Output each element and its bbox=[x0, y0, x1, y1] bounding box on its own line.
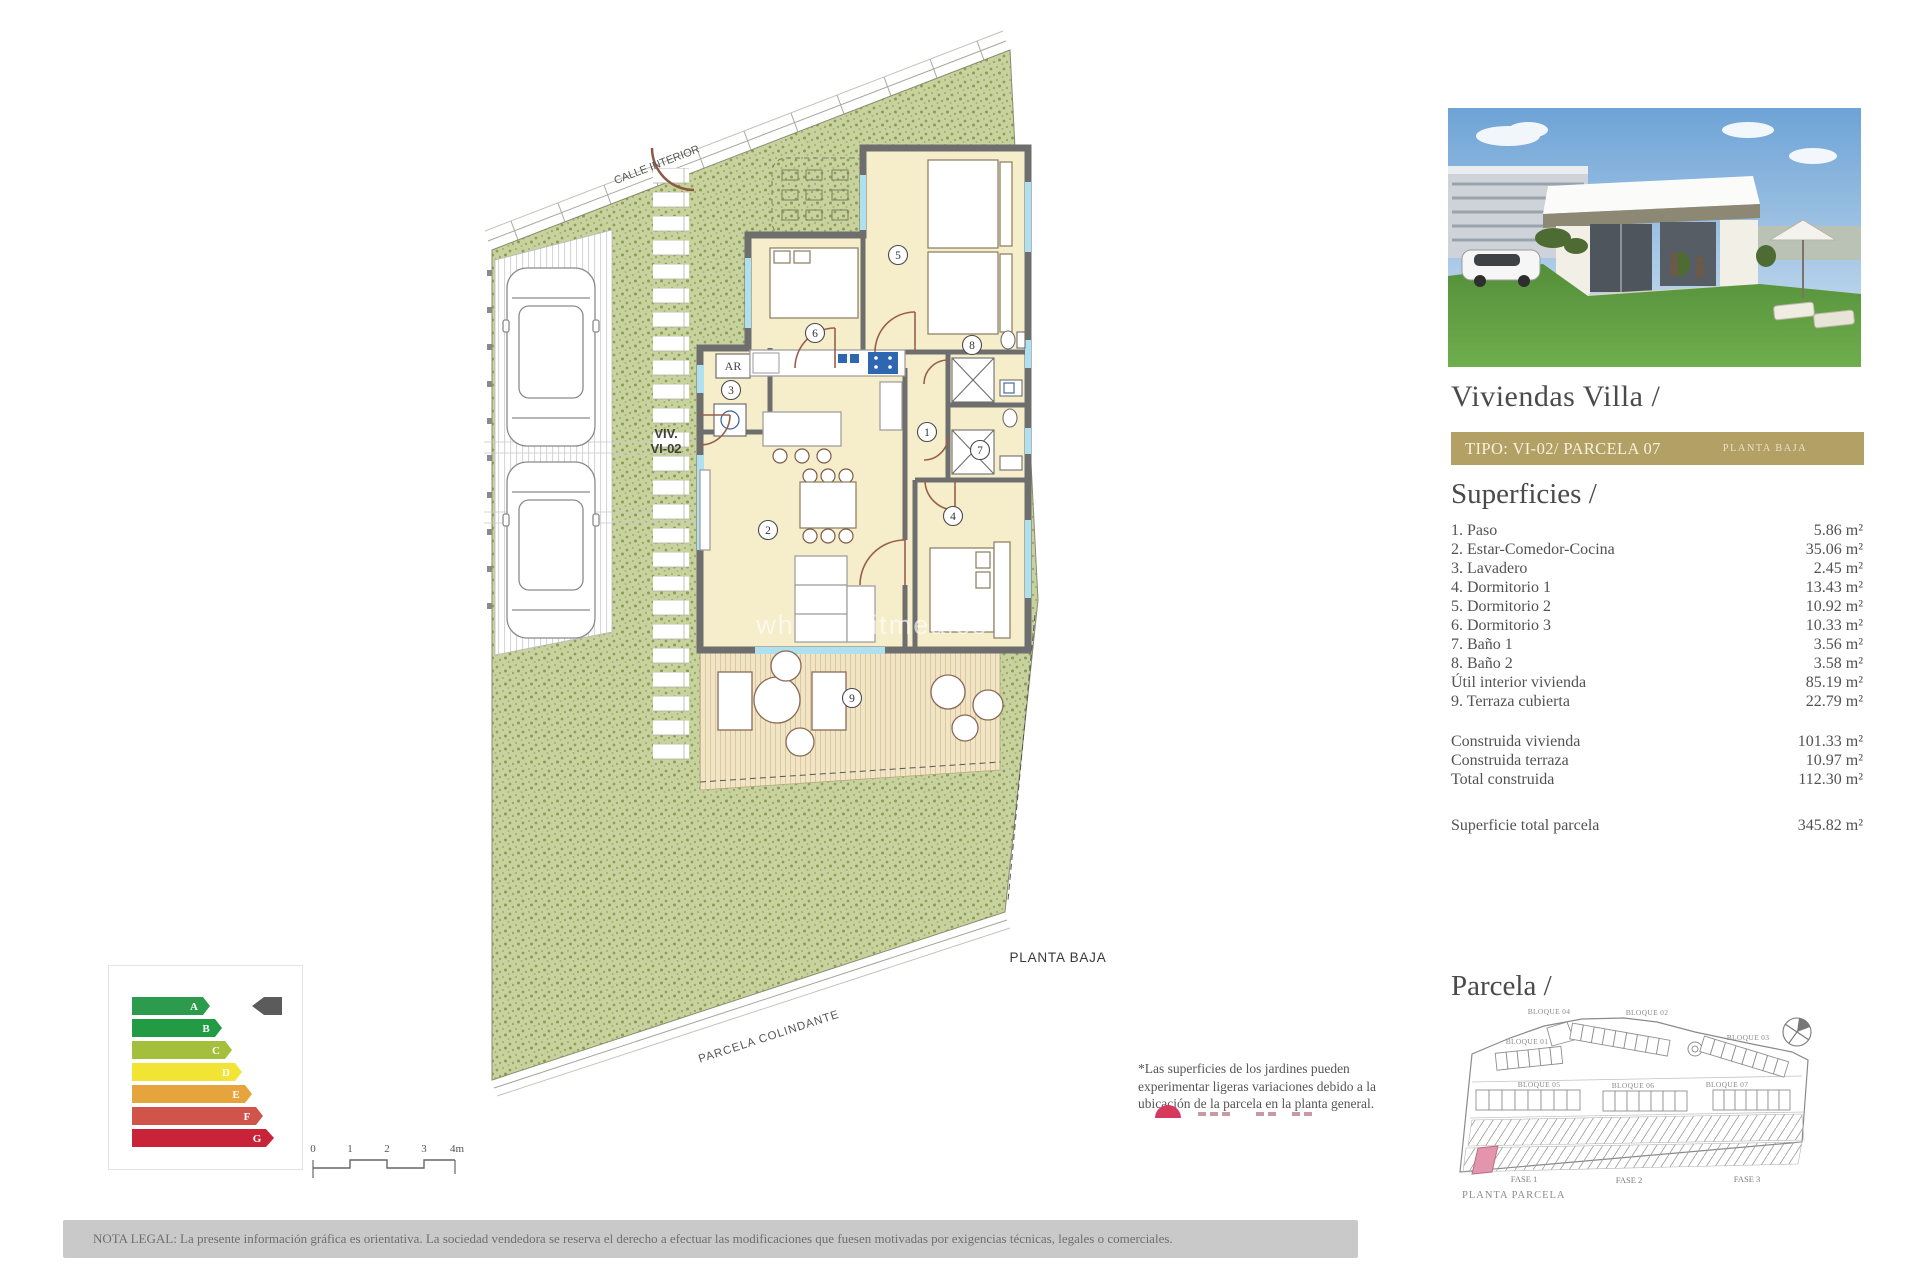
energy-band-a bbox=[132, 997, 210, 1015]
planta-baja-label: PLANTA BAJA bbox=[1009, 950, 1106, 965]
svg-text:3: 3 bbox=[728, 385, 734, 397]
bed-dorm6 bbox=[770, 248, 858, 318]
superficies-totals: Construida vivienda101.33 m² Construida … bbox=[1451, 732, 1863, 789]
superficies-row: Construida vivienda101.33 m² bbox=[1451, 732, 1863, 751]
legal-note-text: NOTA LEGAL: La presente información gráf… bbox=[63, 1220, 1358, 1258]
bloque-05 bbox=[1476, 1090, 1580, 1110]
roundabout bbox=[1688, 1042, 1702, 1056]
viv-label-line1: VIV. bbox=[654, 426, 677, 441]
superficies-row: Total construida112.30 m² bbox=[1451, 770, 1863, 789]
tipo-bar: TIPO: VI-02/ PARCELA 07 PLANTA BAJA bbox=[1451, 432, 1864, 465]
svg-text:1: 1 bbox=[347, 1143, 353, 1155]
svg-text:4m: 4m bbox=[450, 1143, 465, 1155]
red-dot-half bbox=[1155, 1105, 1181, 1118]
svg-text:9: 9 bbox=[849, 693, 855, 705]
svg-text:E: E bbox=[232, 1089, 239, 1101]
dining-set bbox=[800, 469, 856, 543]
svg-text:4: 4 bbox=[950, 511, 956, 523]
room-circle-7: 7 bbox=[971, 441, 990, 460]
bloque-06-label: BLOQUE 06 bbox=[1612, 1081, 1655, 1090]
room-circle-4: 4 bbox=[944, 507, 963, 526]
note-legend-remnant bbox=[1140, 1096, 1400, 1124]
svg-text:A: A bbox=[190, 1001, 198, 1013]
fase-2-label: FASE 2 bbox=[1616, 1175, 1643, 1185]
entry-path bbox=[653, 162, 689, 762]
car-1 bbox=[503, 268, 599, 446]
fase-1-label: FASE 1 bbox=[1511, 1174, 1538, 1184]
superficies-row: Construida terraza10.97 m² bbox=[1451, 751, 1863, 770]
svg-text:3: 3 bbox=[421, 1143, 427, 1155]
room-circle-9: 9 bbox=[843, 689, 862, 708]
svg-text:1: 1 bbox=[924, 427, 930, 439]
svg-text:G: G bbox=[253, 1133, 262, 1145]
svg-text:D: D bbox=[222, 1067, 230, 1079]
superficies-row: 9. Terraza cubierta22.79 m² bbox=[1451, 692, 1863, 711]
superficies-row: 1. Paso5.86 m² bbox=[1451, 521, 1863, 540]
superficies-table: 1. Paso5.86 m² 2. Estar-Comedor-Cocina35… bbox=[1451, 521, 1863, 835]
svg-text:8: 8 bbox=[969, 340, 975, 352]
svg-text:0: 0 bbox=[310, 1143, 316, 1155]
car-2 bbox=[503, 462, 599, 638]
planta-baja-tag: PLANTA BAJA bbox=[1723, 443, 1807, 454]
energy-rating-chart: A B C D E F G bbox=[108, 965, 303, 1170]
legend-dashes bbox=[1198, 1112, 1312, 1116]
superficies-row: 5. Dormitorio 210.92 m² bbox=[1451, 597, 1863, 616]
svg-text:2: 2 bbox=[384, 1143, 390, 1155]
parcela-colindante-label: PARCELA COLINDANTE bbox=[697, 1009, 841, 1066]
page-title: Viviendas Villa / bbox=[1451, 380, 1660, 414]
floor-plan: 1 2 3 4 5 6 7 8 9 AR CALLE INTERIOR VIV.… bbox=[440, 30, 1440, 1230]
room-circle-2: 2 bbox=[759, 521, 778, 540]
bloque-05-label: BLOQUE 05 bbox=[1518, 1080, 1561, 1089]
svg-text:2: 2 bbox=[765, 525, 771, 537]
villa-photo bbox=[1448, 108, 1861, 367]
svg-text:7: 7 bbox=[977, 445, 983, 457]
bloque-07 bbox=[1713, 1090, 1790, 1110]
svg-text:B: B bbox=[202, 1023, 210, 1035]
bloque-04-label: BLOQUE 04 bbox=[1528, 1007, 1571, 1016]
compass-icon bbox=[1783, 1018, 1811, 1046]
viv-label-line2: VI-02 bbox=[650, 441, 681, 456]
superficies-row: 3. Lavadero2.45 m² bbox=[1451, 559, 1863, 578]
west-fence bbox=[487, 270, 492, 609]
superficies-grand-total: Superficie total parcela345.82 m² bbox=[1451, 816, 1863, 835]
svg-text:F: F bbox=[244, 1111, 251, 1123]
room-circle-3: 3 bbox=[722, 381, 741, 400]
superficies-row: 4. Dormitorio 113.43 m² bbox=[1451, 578, 1863, 597]
bloque-03-label: BLOQUE 03 bbox=[1727, 1033, 1770, 1042]
watermark: whitedigitmeales bbox=[755, 610, 988, 640]
planta-parcela-caption: PLANTA PARCELA bbox=[1462, 1190, 1566, 1201]
svg-text:6: 6 bbox=[812, 328, 818, 340]
svg-text:5: 5 bbox=[895, 250, 901, 262]
svg-text:C: C bbox=[212, 1045, 220, 1057]
room-circle-8: 8 bbox=[963, 336, 982, 355]
legal-note-bar: NOTA LEGAL: La presente información gráf… bbox=[63, 1220, 1358, 1258]
room-circle-5: 5 bbox=[889, 246, 908, 265]
bloque-01-label: BLOQUE 01 bbox=[1506, 1037, 1549, 1046]
bloque-06 bbox=[1603, 1091, 1687, 1111]
superficies-row: 2. Estar-Comedor-Cocina35.06 m² bbox=[1451, 540, 1863, 559]
superficies-row: Superficie total parcela345.82 m² bbox=[1451, 816, 1863, 835]
superficies-row: Útil interior vivienda85.19 m² bbox=[1451, 673, 1863, 692]
superficies-row: 6. Dormitorio 310.33 m² bbox=[1451, 616, 1863, 635]
room-circle-1: 1 bbox=[918, 423, 937, 442]
room-circle-6: 6 bbox=[806, 324, 825, 343]
superficies-row: 7. Baño 13.56 m² bbox=[1451, 635, 1863, 654]
superficies-row: 8. Baño 23.58 m² bbox=[1451, 654, 1863, 673]
scale-bar: 0 1 2 3 4m bbox=[303, 1138, 483, 1183]
bloque-02-label: BLOQUE 02 bbox=[1626, 1008, 1669, 1017]
ar-label: AR bbox=[725, 359, 742, 373]
tipo-parcela-label: TIPO: VI-02/ PARCELA 07 bbox=[1465, 439, 1661, 459]
superficies-heading: Superficies / bbox=[1451, 478, 1597, 511]
bloque-07-label: BLOQUE 07 bbox=[1706, 1080, 1749, 1089]
parcela-heading: Parcela / bbox=[1451, 970, 1552, 1003]
fase-3-label: FASE 3 bbox=[1734, 1174, 1761, 1184]
parcela-site-map: BLOQUE 04 BLOQUE 02 BLOQUE 01 BLOQUE 03 … bbox=[1452, 1002, 1902, 1187]
